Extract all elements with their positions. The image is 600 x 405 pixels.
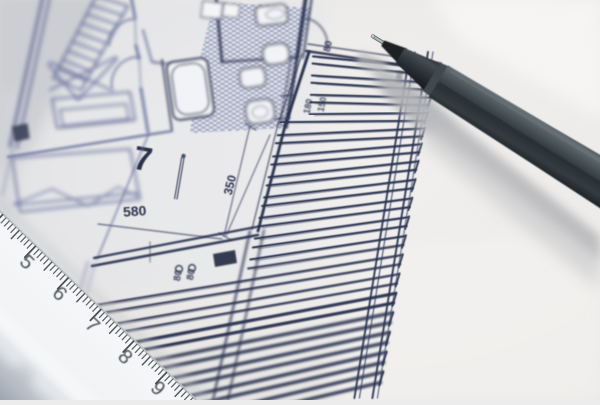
svg-text:580: 580	[122, 202, 147, 220]
